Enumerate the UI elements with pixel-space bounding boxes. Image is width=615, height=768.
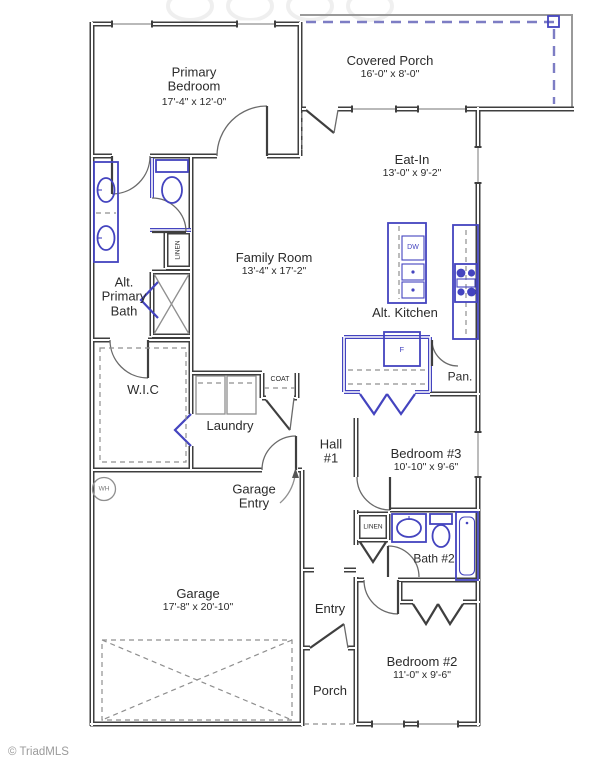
primary-bedroom-door: [217, 106, 267, 156]
window: [371, 721, 405, 728]
faint-watermark: [168, 0, 392, 20]
window: [475, 431, 482, 478]
entry-label: Entry: [315, 602, 345, 616]
wic-label: W.I.C: [127, 383, 159, 397]
fridge-counter-band: [348, 370, 426, 384]
bath-2-label: Bath #2: [413, 552, 454, 565]
garage-dims: 17'-8" x 20'-10": [163, 602, 233, 614]
dryer-icon: [227, 376, 256, 414]
floor-plan: Primary Bedroom 17'-4" x 12'-0" Covered …: [0, 0, 615, 768]
porch-label: Porch: [313, 684, 347, 698]
bedroom-2-label: Bedroom #2: [387, 655, 458, 669]
toilet-icon: [430, 514, 452, 547]
porch-patio-door: [302, 110, 338, 150]
floor-plan-linework: [0, 0, 615, 768]
primary-bedroom-label: Primary Bedroom: [152, 66, 236, 95]
window: [111, 21, 153, 28]
front-door: [310, 624, 348, 648]
bedroom-2-door: [364, 580, 398, 614]
window: [417, 721, 459, 728]
bedroom-3-door: [357, 477, 390, 510]
pantry-label: Pan.: [448, 370, 473, 383]
eat-in-dims: 13'-0" x 9'-2": [383, 168, 442, 180]
water-heater-label: WH: [99, 485, 110, 492]
laundry-label: Laundry: [207, 419, 254, 433]
wic-door: [110, 340, 148, 378]
garage-entry-label: Garage Entry: [221, 483, 287, 512]
walls: [90, 22, 574, 726]
covered-porch-boundary: [300, 15, 572, 107]
covered-porch-dims: 16'-0" x 8'-0": [361, 69, 420, 81]
coat-closet-label: COAT: [271, 376, 290, 384]
bedroom-3-label: Bedroom #3: [391, 447, 462, 461]
family-room-label: Family Room: [236, 251, 313, 265]
linen-hall-label: LINEN: [363, 523, 382, 530]
primary-bedroom-dims: 17'-4" x 12'-0": [162, 97, 227, 109]
alt-primary-bath-label: Alt. Primary Bath: [94, 276, 154, 319]
refrigerator-label: F: [400, 346, 405, 354]
bath-2-fixtures: [392, 512, 478, 580]
mls-copyright: © TriadMLS: [8, 746, 69, 758]
window: [475, 146, 482, 184]
garage-label: Garage: [176, 587, 219, 601]
garage-parking-area: [102, 640, 292, 720]
bedroom-3-dims: 10'-10" x 9'-6": [394, 462, 459, 474]
window: [417, 106, 467, 113]
vanity-sinks: [94, 162, 118, 262]
dishwasher-label: DW: [407, 244, 419, 252]
toilet-icon: [156, 160, 188, 203]
bedroom-2-dims: 11'-0" x 9'-6": [393, 670, 451, 682]
window: [236, 21, 276, 28]
shower: [154, 274, 189, 334]
kitchen-island: [388, 223, 426, 303]
washer-icon: [196, 376, 225, 414]
covered-porch-label: Covered Porch: [347, 54, 434, 68]
window: [351, 106, 397, 113]
bathtub-icon: [456, 512, 478, 580]
sink-icon: [392, 514, 426, 542]
coat-closet-door: [266, 398, 294, 430]
alt-kitchen-label: Alt. Kitchen: [372, 306, 438, 320]
wic-shelving: [100, 348, 186, 462]
hall-1-label: Hall #1: [312, 438, 350, 467]
family-room-dims: 13'-4" x 17'-2": [242, 266, 307, 278]
garage-entry-door: [262, 436, 296, 470]
pantry-door: [432, 340, 458, 366]
eat-in-label: Eat-In: [395, 153, 430, 167]
linen-primary-label: LINEN: [174, 240, 181, 259]
